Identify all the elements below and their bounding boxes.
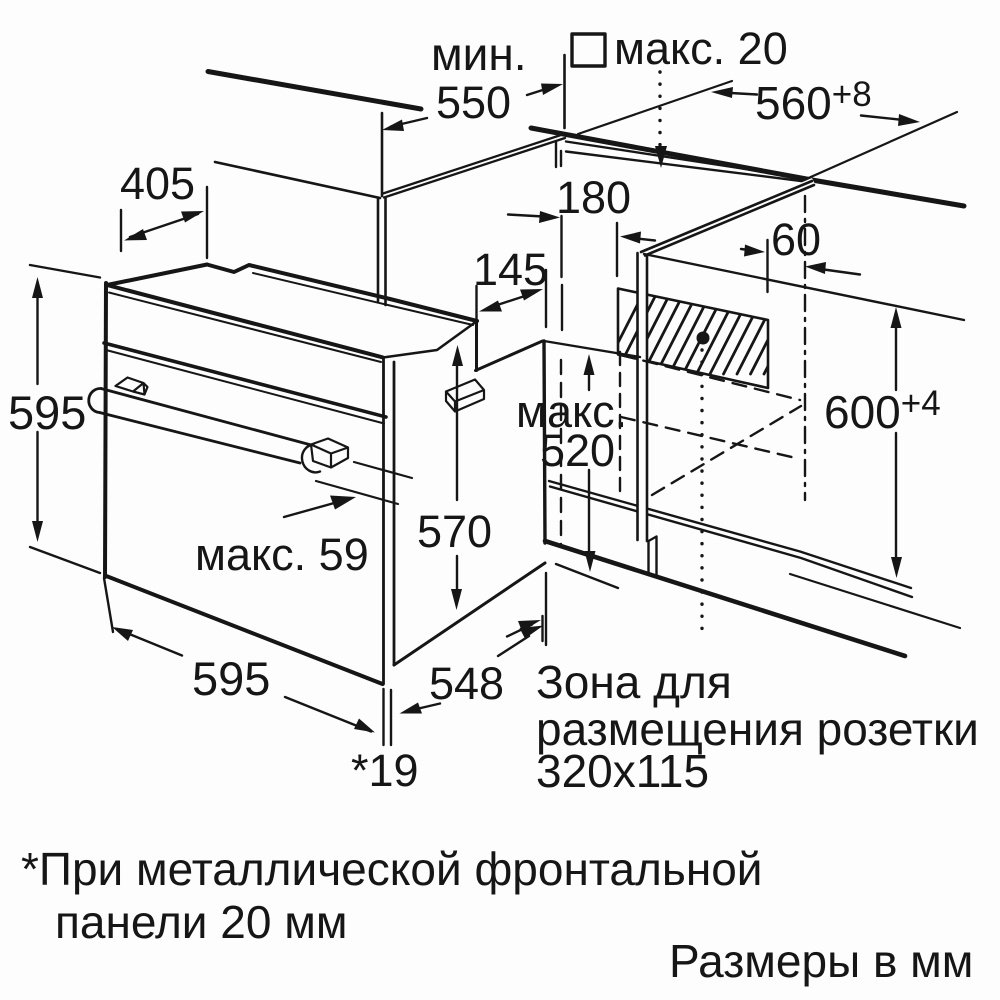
svg-text:595: 595 [8, 386, 86, 439]
svg-text:570: 570 [417, 506, 492, 557]
svg-text:*При металлической фронтальной: *При металлической фронтальной [21, 843, 763, 895]
svg-text:560+8: 560+8 [755, 75, 872, 129]
svg-text:145: 145 [473, 244, 548, 295]
svg-text:520: 520 [540, 425, 615, 476]
svg-text:Размеры в мм: Размеры в мм [669, 935, 973, 987]
svg-text:панели 20 мм: панели 20 мм [55, 896, 347, 948]
svg-text:595: 595 [192, 652, 270, 705]
svg-text:макс. 59: макс. 59 [195, 529, 369, 580]
svg-text:Зона для: Зона для [536, 656, 732, 708]
svg-text:405: 405 [120, 158, 195, 209]
svg-text:*19: *19 [351, 745, 419, 796]
svg-text:60: 60 [771, 214, 821, 265]
svg-text:мин.: мин. [431, 28, 527, 80]
svg-text:548: 548 [429, 658, 504, 709]
svg-text:180: 180 [556, 172, 631, 223]
svg-text:550: 550 [436, 77, 511, 128]
svg-text:600+4: 600+4 [824, 384, 941, 438]
svg-text:320x115: 320x115 [536, 745, 709, 797]
svg-text:макс. 20: макс. 20 [614, 23, 788, 74]
